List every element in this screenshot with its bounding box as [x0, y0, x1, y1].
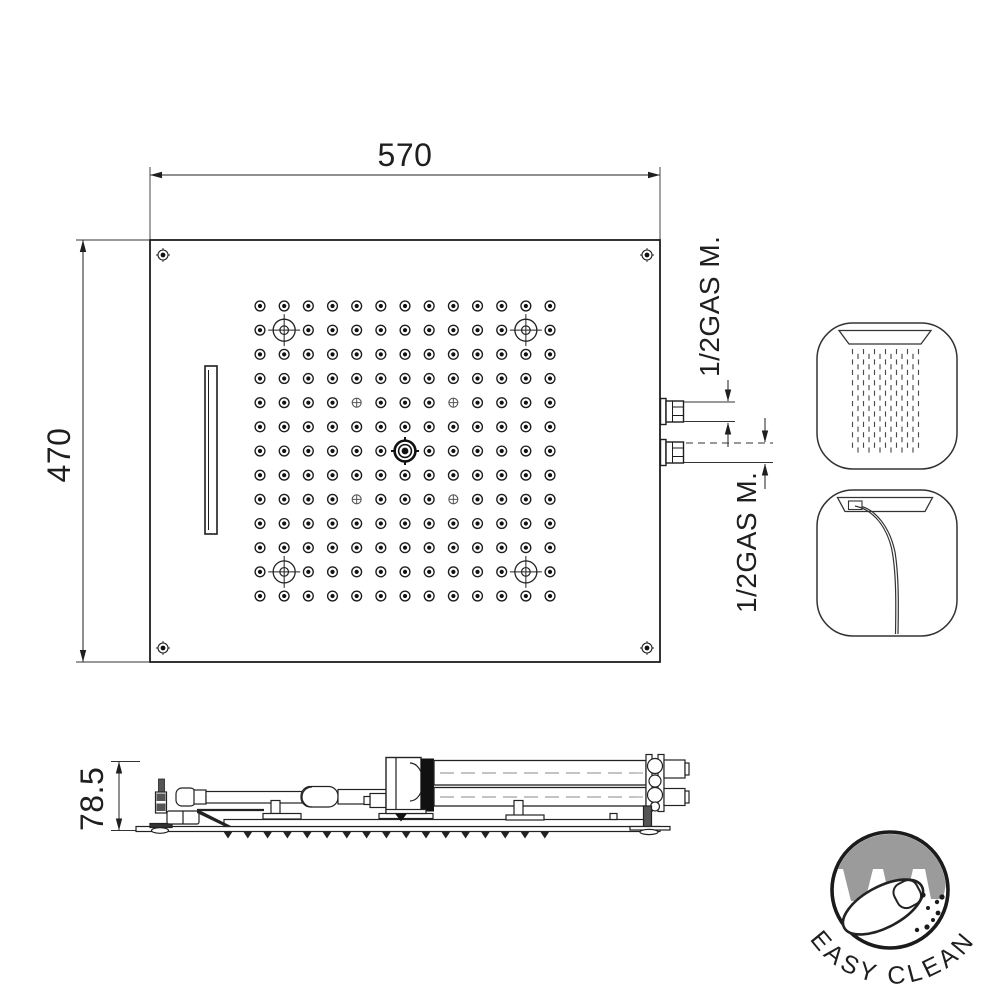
nozzle: [355, 425, 359, 429]
nozzle: [258, 521, 262, 525]
nozzle: [258, 473, 262, 477]
nozzle: [427, 449, 431, 453]
drawing-canvas: 570 470: [0, 0, 1000, 1000]
height-dim-label: 470: [41, 428, 77, 483]
side-nozzle: [283, 832, 292, 839]
nozzle: [258, 594, 262, 598]
nozzle: [330, 570, 334, 574]
nozzle: [548, 497, 552, 501]
panel-base-plate: [136, 827, 660, 832]
nozzle: [475, 570, 479, 574]
nozzle: [330, 473, 334, 477]
side-nozzle: [263, 832, 272, 839]
nozzle: [451, 521, 455, 525]
nozzle: [355, 473, 359, 477]
nozzle: [548, 401, 552, 405]
nozzle: [427, 521, 431, 525]
side-nozzle: [382, 832, 391, 839]
side-nozzle: [540, 832, 549, 839]
width-dim-label: 570: [378, 137, 433, 173]
nozzle: [355, 304, 359, 308]
nozzle: [306, 352, 310, 356]
nozzle: [403, 425, 407, 429]
nozzle: [475, 546, 479, 550]
nozzle: [548, 425, 552, 429]
nozzle: [475, 449, 479, 453]
nozzle: [475, 328, 479, 332]
nozzle: [282, 425, 286, 429]
nozzle: [379, 328, 383, 332]
nozzle: [355, 546, 359, 550]
nozzle: [451, 546, 455, 550]
nozzle: [500, 570, 504, 574]
technical-drawing-sheet: 570 470: [0, 0, 1000, 1000]
supply-tubes: [434, 761, 646, 807]
nozzle: [258, 304, 262, 308]
nozzle: [500, 449, 504, 453]
connection-top-label: 1/2GAS M.: [694, 236, 725, 377]
nozzle: [355, 352, 359, 356]
nozzle: [282, 449, 286, 453]
nozzle: [475, 401, 479, 405]
nozzle: [379, 449, 383, 453]
nozzle: [355, 328, 359, 332]
nozzle: [355, 594, 359, 598]
nozzle: [427, 304, 431, 308]
nozzle: [306, 425, 310, 429]
nozzle: [548, 449, 552, 453]
nozzle: [427, 473, 431, 477]
nozzle: [379, 521, 383, 525]
nozzle: [306, 546, 310, 550]
waterfall-spray-icon: [817, 490, 957, 636]
nozzle: [500, 594, 504, 598]
nozzle: [427, 376, 431, 380]
nozzle: [524, 352, 528, 356]
nozzle: [548, 328, 552, 332]
nozzle: [500, 497, 504, 501]
nozzle: [306, 401, 310, 405]
nozzle: [427, 328, 431, 332]
nozzle: [282, 376, 286, 380]
nozzle: [330, 594, 334, 598]
side-nozzle: [461, 832, 470, 839]
nozzle: [330, 521, 334, 525]
nozzle: [306, 328, 310, 332]
side-nozzle: [421, 832, 430, 839]
side-nozzle: [342, 832, 351, 839]
side-nozzle: [520, 832, 529, 839]
nozzle: [282, 521, 286, 525]
nozzle: [258, 449, 262, 453]
nozzle: [379, 546, 383, 550]
side-nozzle: [481, 832, 490, 839]
nozzle: [475, 473, 479, 477]
nozzle: [451, 376, 455, 380]
nozzle: [524, 594, 528, 598]
nozzle: [379, 304, 383, 308]
side-nozzle: [402, 832, 411, 839]
center-nozzle: [402, 448, 409, 455]
nozzle: [427, 546, 431, 550]
nozzle: [500, 521, 504, 525]
dimension-connection-top: 1/2GAS M.: [684, 236, 735, 447]
nozzle: [500, 473, 504, 477]
nozzle: [403, 473, 407, 477]
nozzle: [282, 546, 286, 550]
nozzle: [379, 497, 383, 501]
icon-slot: [849, 501, 863, 510]
nozzle: [524, 521, 528, 525]
nozzle: [524, 497, 528, 501]
nozzle: [379, 376, 383, 380]
side-nozzles: [223, 832, 549, 839]
side-height-dim-label: 78.5: [74, 767, 110, 831]
nozzle: [258, 570, 262, 574]
side-nozzle: [322, 832, 331, 839]
side-view: 78.5: [74, 755, 689, 839]
nozzle: [330, 425, 334, 429]
nozzle: [330, 352, 334, 356]
nozzle: [475, 497, 479, 501]
connection-fitting-bottom: [661, 440, 684, 466]
nozzle: [403, 401, 407, 405]
nozzle: [330, 328, 334, 332]
nozzle: [306, 304, 310, 308]
nozzle: [306, 521, 310, 525]
nozzle: [403, 546, 407, 550]
nozzle: [282, 497, 286, 501]
nozzle: [548, 304, 552, 308]
nozzle: [403, 328, 407, 332]
nozzle: [355, 449, 359, 453]
nozzle: [475, 594, 479, 598]
nozzle: [258, 497, 262, 501]
nozzle: [258, 401, 262, 405]
easy-clean-badge: EASY CLEAN: [805, 818, 982, 990]
dimension-height: 470: [41, 240, 149, 662]
nozzle: [500, 401, 504, 405]
nozzle: [403, 376, 407, 380]
nozzle: [475, 521, 479, 525]
nozzle: [427, 401, 431, 405]
nozzle: [524, 546, 528, 550]
connection-bottom-label: 1/2GAS M.: [731, 472, 762, 613]
nozzle: [355, 376, 359, 380]
nozzle: [403, 497, 407, 501]
side-nozzle: [501, 832, 510, 839]
nozzle: [306, 570, 310, 574]
nozzle: [475, 352, 479, 356]
nozzle: [355, 570, 359, 574]
pipe-coupling: [301, 787, 338, 808]
nozzle: [500, 546, 504, 550]
nozzle: [548, 546, 552, 550]
side-nozzle: [303, 832, 312, 839]
nozzle: [427, 425, 431, 429]
nozzle: [282, 304, 286, 308]
top-view: 570 470: [41, 137, 773, 662]
nozzle: [548, 352, 552, 356]
dimension-side-height: 78.5: [74, 762, 152, 832]
nozzle: [524, 376, 528, 380]
nozzle: [403, 352, 407, 356]
nozzle: [330, 401, 334, 405]
nozzle: [524, 425, 528, 429]
waterfall-slot: [205, 366, 217, 534]
nozzle: [379, 473, 383, 477]
nozzle: [306, 449, 310, 453]
side-nozzle: [223, 832, 232, 839]
nozzle: [524, 304, 528, 308]
nozzle: [258, 376, 262, 380]
nozzle: [451, 473, 455, 477]
rain-spray-icon: [817, 323, 957, 469]
nozzle: [427, 352, 431, 356]
nozzle: [403, 304, 407, 308]
nozzle: [403, 521, 407, 525]
nozzle: [282, 401, 286, 405]
nozzle: [403, 594, 407, 598]
nozzle: [451, 570, 455, 574]
nozzle: [451, 449, 455, 453]
nozzle: [548, 570, 552, 574]
nozzle: [355, 521, 359, 525]
nozzle: [379, 401, 383, 405]
nozzle: [427, 570, 431, 574]
nozzle: [306, 594, 310, 598]
nozzle: [330, 546, 334, 550]
side-nozzle: [441, 832, 450, 839]
nozzle: [500, 376, 504, 380]
nozzle: [379, 425, 383, 429]
side-nozzle: [362, 832, 371, 839]
nozzle: [330, 304, 334, 308]
nozzle: [524, 401, 528, 405]
nozzle: [451, 425, 455, 429]
nozzle: [548, 376, 552, 380]
nozzle: [475, 304, 479, 308]
nozzle: [427, 594, 431, 598]
nozzle: [451, 328, 455, 332]
nozzle: [500, 304, 504, 308]
nozzle: [500, 425, 504, 429]
nozzle: [258, 328, 262, 332]
nozzle: [282, 473, 286, 477]
nozzle: [379, 594, 383, 598]
nozzle: [306, 497, 310, 501]
nozzle: [548, 473, 552, 477]
nozzle: [330, 497, 334, 501]
dimension-width: 570: [150, 137, 660, 242]
side-nozzle: [243, 832, 252, 839]
nozzle: [548, 594, 552, 598]
pipe: [206, 792, 302, 804]
panel-inner-plate: [224, 820, 648, 827]
spray-mode-icons: [817, 323, 957, 636]
nozzle: [427, 497, 431, 501]
nozzle: [524, 473, 528, 477]
dimension-connection-bottom: 1/2GAS M.: [684, 418, 773, 613]
nozzle: [548, 521, 552, 525]
nozzle: [403, 570, 407, 574]
nozzle: [379, 352, 383, 356]
nozzle: [330, 449, 334, 453]
nozzle: [451, 352, 455, 356]
nozzle: [330, 376, 334, 380]
nozzle: [306, 473, 310, 477]
nozzle: [475, 425, 479, 429]
connection-fitting-top: [661, 399, 684, 425]
nozzle: [475, 376, 479, 380]
icon-shower-head: [839, 331, 931, 345]
nozzle: [500, 352, 504, 356]
nozzle: [258, 425, 262, 429]
nozzle: [306, 376, 310, 380]
nozzle: [451, 594, 455, 598]
nozzle: [282, 594, 286, 598]
nozzle: [258, 546, 262, 550]
nozzle: [282, 352, 286, 356]
nozzle: [451, 304, 455, 308]
nozzle: [500, 328, 504, 332]
nozzle: [524, 449, 528, 453]
nozzle: [258, 352, 262, 356]
nozzle: [379, 570, 383, 574]
